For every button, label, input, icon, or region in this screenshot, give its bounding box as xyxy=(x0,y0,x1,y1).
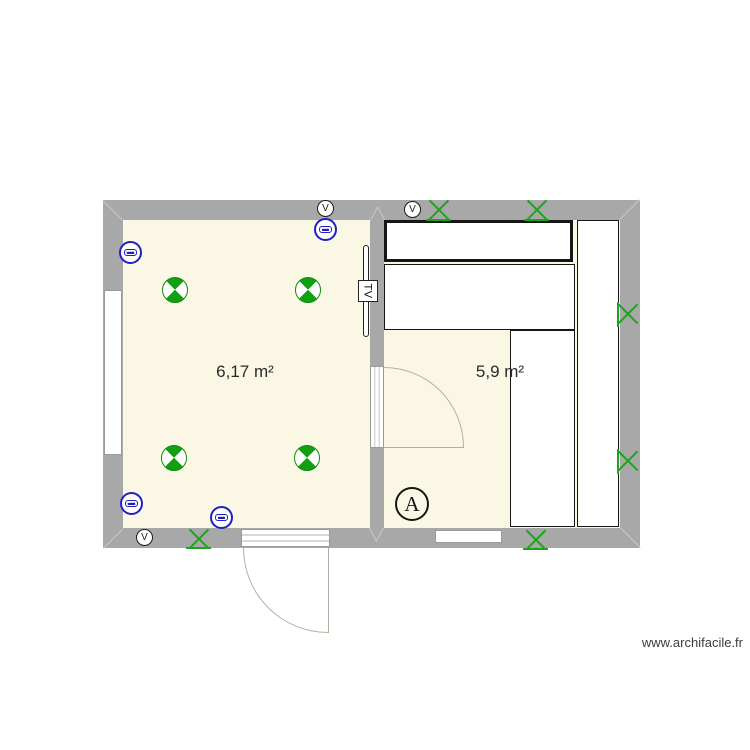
wall-light-mount xyxy=(426,219,451,221)
marker-a-icon[interactable]: A xyxy=(395,487,429,521)
window-left-wall[interactable] xyxy=(104,290,122,455)
wall-light-mount xyxy=(186,547,211,549)
furniture-shelf-middle[interactable] xyxy=(384,264,575,330)
outlet-label: 100 xyxy=(218,516,225,520)
exterior-door-opening[interactable] xyxy=(241,529,330,547)
vent-icon[interactable]: V xyxy=(404,201,421,218)
wall-light-icon[interactable] xyxy=(429,200,449,220)
power-outlet-icon[interactable]: 100 xyxy=(210,506,233,529)
power-outlet-icon[interactable]: 100 xyxy=(314,218,337,241)
tv-icon[interactable]: TV xyxy=(358,280,378,302)
ceiling-light-icon[interactable] xyxy=(294,445,320,471)
interior-door-open-leaf-line xyxy=(384,447,464,448)
ceiling-light-icon[interactable] xyxy=(162,277,188,303)
outlet-label: 100 xyxy=(322,228,329,232)
exterior-door-swing-arc xyxy=(243,548,328,633)
vent-label: V xyxy=(141,532,148,543)
vent-label: V xyxy=(322,203,329,214)
exterior-door-open-leaf-line xyxy=(328,548,330,633)
room-area-label: 6,17 m² xyxy=(175,362,315,382)
furniture-wardrobe[interactable] xyxy=(577,220,619,527)
wall-light-mount xyxy=(524,219,549,221)
power-outlet-icon[interactable]: USB xyxy=(119,241,142,264)
wall-light-mount xyxy=(617,449,619,474)
floorplan-canvas: USB 100 USB 100 V V V TV A 6,17 m² 5,9 m… xyxy=(0,0,750,750)
wall-light-icon[interactable] xyxy=(618,304,638,324)
interior-door-opening[interactable] xyxy=(370,366,384,448)
wall-light-mount xyxy=(523,548,548,550)
marker-a-label: A xyxy=(404,492,419,517)
furniture-shelf-top[interactable] xyxy=(384,220,573,262)
watermark-link[interactable]: www.archifacile.fr xyxy=(598,635,743,650)
wall-divider-lower[interactable] xyxy=(370,448,384,528)
outlet-label: USB xyxy=(126,251,134,255)
vent-icon[interactable]: V xyxy=(317,200,334,217)
outlet-label: USB xyxy=(127,502,135,506)
ceiling-light-icon[interactable] xyxy=(295,277,321,303)
wall-light-icon[interactable] xyxy=(527,200,547,220)
vent-label: V xyxy=(409,204,416,215)
tv-label: TV xyxy=(362,283,374,298)
ceiling-light-icon[interactable] xyxy=(161,445,187,471)
wall-light-mount xyxy=(617,302,619,327)
furniture-cabinet[interactable] xyxy=(510,330,575,527)
power-outlet-icon[interactable]: USB xyxy=(120,492,143,515)
wall-light-icon[interactable] xyxy=(618,451,638,471)
vent-icon[interactable]: V xyxy=(136,529,153,546)
window-bottom-wall[interactable] xyxy=(435,530,502,543)
wall-right[interactable] xyxy=(620,220,640,528)
room-area-label: 5,9 m² xyxy=(440,362,560,382)
